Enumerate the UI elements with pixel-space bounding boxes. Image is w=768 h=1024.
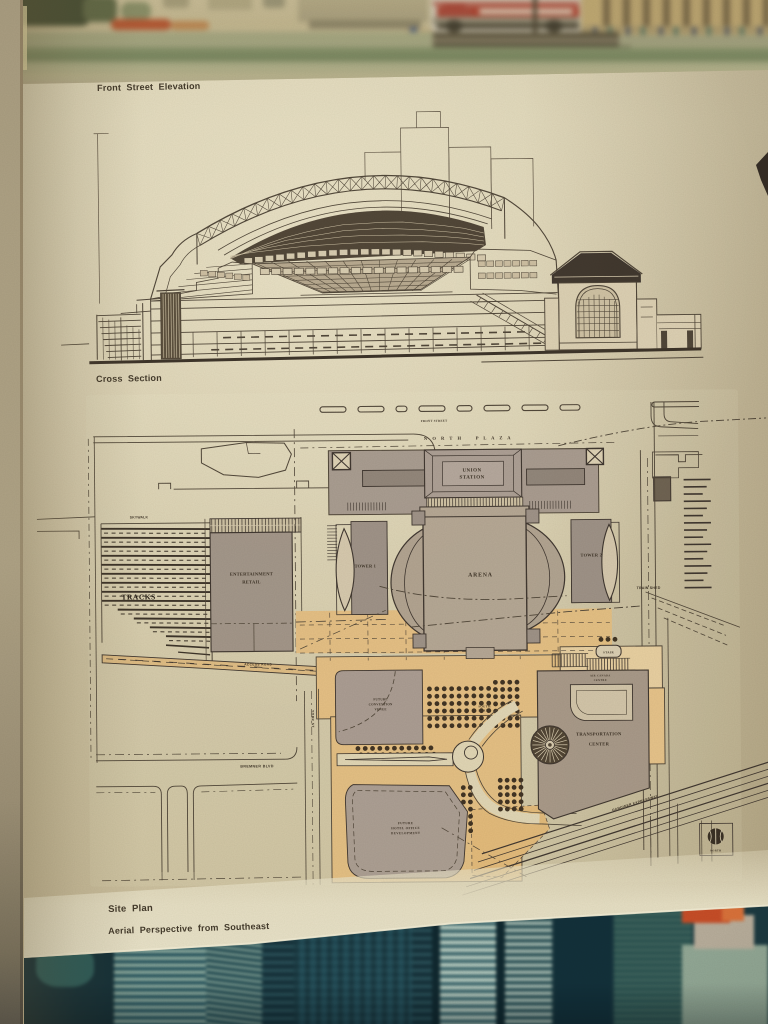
svg-text:FUTURE: FUTURE <box>398 821 414 825</box>
svg-text:RETAIL: RETAIL <box>242 579 261 584</box>
svg-text:TOWER 1: TOWER 1 <box>355 563 376 568</box>
svg-text:TRANSPORTATION: TRANSPORTATION <box>576 731 622 736</box>
svg-text:ARENA: ARENA <box>468 572 493 578</box>
svg-text:FRONT STREET: FRONT STREET <box>421 419 448 423</box>
svg-text:STATION: STATION <box>459 475 484 480</box>
svg-text:DEVELOPMENT: DEVELOPMENT <box>391 831 421 835</box>
svg-text:BREMNER BLVD: BREMNER BLVD <box>240 764 274 768</box>
svg-text:NORTH: NORTH <box>710 849 721 852</box>
svg-text:CONVENTION: CONVENTION <box>369 702 393 706</box>
svg-text:TRACKS: TRACKS <box>121 592 155 601</box>
svg-text:CENTRE: CENTRE <box>594 679 607 682</box>
svg-text:ENTERTAINMENT: ENTERTAINMENT <box>230 571 273 576</box>
svg-text:FUTURE: FUTURE <box>373 697 387 701</box>
svg-text:YORK ST: YORK ST <box>311 710 315 728</box>
svg-text:ACCESS ROAD: ACCESS ROAD <box>244 662 272 666</box>
svg-text:SKYWALK: SKYWALK <box>130 515 149 519</box>
svg-text:CENTER: CENTER <box>589 741 610 746</box>
svg-text:PLAZA: PLAZA <box>479 708 492 712</box>
svg-text:TOWER 2: TOWER 2 <box>581 552 602 557</box>
svg-text:N O R T H P L A Z A: N O R T H P L A Z A <box>424 435 513 441</box>
svg-text:VENUE: VENUE <box>375 707 387 711</box>
svg-text:TRAIN SHED: TRAIN SHED <box>637 586 661 590</box>
svg-text:HOTEL OFFICE: HOTEL OFFICE <box>391 826 420 830</box>
svg-text:STAIR: STAIR <box>603 650 614 654</box>
svg-text:UNION: UNION <box>462 468 481 473</box>
svg-text:AIR CANADA: AIR CANADA <box>590 674 611 677</box>
